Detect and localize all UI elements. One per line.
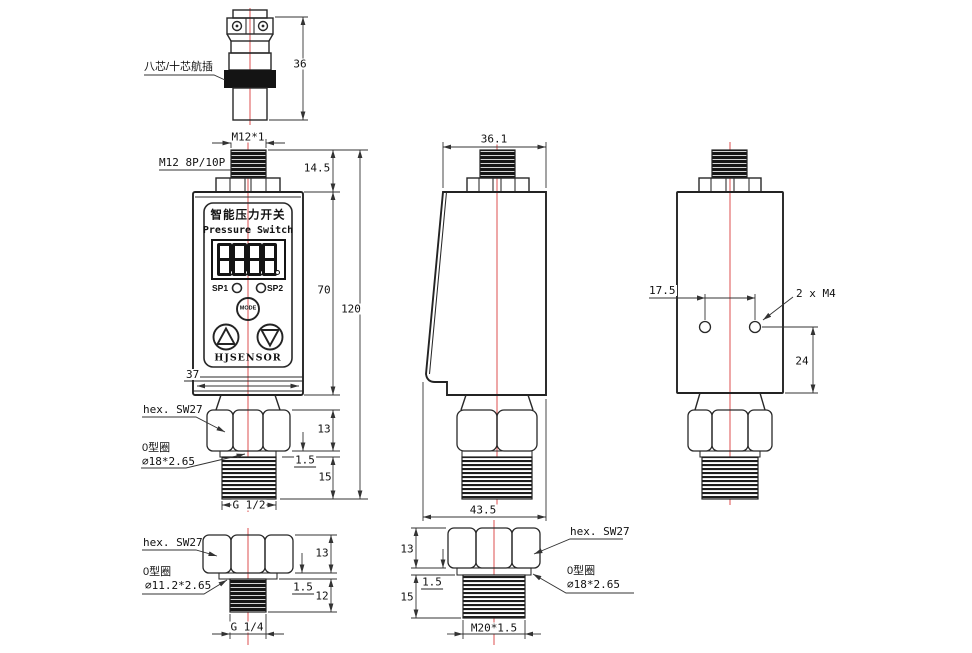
connector-height-dim: 36 bbox=[292, 59, 307, 70]
front-body-dim: 70 bbox=[316, 285, 331, 296]
m20-thread-len-dim: 15 bbox=[399, 592, 414, 603]
connector-label: 八芯/十芯航插 bbox=[144, 62, 213, 73]
front-hex-label: hex. SW27 bbox=[143, 404, 203, 415]
front-total-dim: 120 bbox=[340, 304, 362, 315]
side-view bbox=[423, 140, 546, 521]
g14-hex-dim: 13 bbox=[314, 548, 329, 559]
seven-segment-digit bbox=[247, 243, 262, 276]
g14-port-dim: G 1/4 bbox=[229, 622, 264, 633]
sp2-label: SP2 bbox=[267, 284, 283, 293]
seven-segment-digit bbox=[232, 243, 247, 276]
m20-port-dim: M20*1.5 bbox=[470, 623, 518, 634]
brand-logo: HJSENSOR bbox=[214, 353, 281, 363]
front-hex-dim: 13 bbox=[316, 424, 331, 435]
rear-hole-spacing-dim: 17.5 bbox=[648, 285, 677, 296]
front-plug-label: M12 8P/10P bbox=[159, 157, 225, 168]
g14-hex-label: hex. SW27 bbox=[143, 537, 203, 548]
technical-drawing: 八芯/十芯航插 36 M12*1 M12 8P/10P 14.5 70 120 … bbox=[0, 0, 972, 653]
mode-button-label: MODE bbox=[240, 306, 257, 312]
m20-oring-spec: ∅18*2.65 bbox=[567, 579, 620, 590]
front-thread-len-dim: 15 bbox=[317, 472, 332, 483]
seven-segment-digit bbox=[217, 243, 232, 276]
g14-oring-spec: ∅11.2*2.65 bbox=[145, 580, 211, 591]
front-port-dim: G 1/2 bbox=[231, 500, 266, 511]
front-top-dim: 14.5 bbox=[303, 163, 332, 174]
m20-oring-label: 0型圈 bbox=[567, 566, 595, 577]
front-oring-label: 0型圈 bbox=[142, 443, 170, 454]
m20-oring-dim: 1.5 bbox=[421, 577, 443, 590]
g14-oring-label: 0型圈 bbox=[143, 567, 171, 578]
panel-title-en: Pressure Switch bbox=[203, 226, 293, 236]
panel-title-cn: 智能压力开关 bbox=[211, 210, 286, 222]
front-thread-dim: M12*1 bbox=[230, 132, 265, 143]
rear-holes-label: 2 x M4 bbox=[795, 288, 837, 299]
g14-thread-len-dim: 12 bbox=[314, 591, 329, 602]
front-oring-dim: 1.5 bbox=[294, 455, 316, 468]
sp1-label: SP1 bbox=[212, 284, 228, 293]
front-width-dim: 37 bbox=[185, 369, 200, 380]
front-oring-spec: ∅18*2.65 bbox=[142, 456, 195, 467]
g14-oring-dim: 1.5 bbox=[292, 582, 314, 595]
m20-hex-dim: 13 bbox=[399, 544, 414, 555]
m20-hex-label: hex. SW27 bbox=[570, 526, 630, 537]
seven-segment-digit bbox=[262, 243, 277, 276]
rear-view bbox=[649, 142, 818, 505]
seven-segment-display bbox=[211, 239, 286, 280]
side-top-width-dim: 36.1 bbox=[480, 134, 509, 145]
drawing-canvas bbox=[0, 0, 972, 653]
side-bottom-width-dim: 43.5 bbox=[469, 505, 498, 516]
rear-hole-offset-dim: 24 bbox=[794, 356, 809, 367]
